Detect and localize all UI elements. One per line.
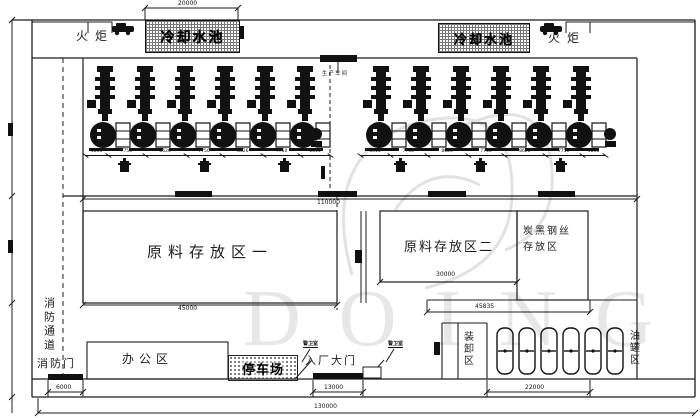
dim-pool-width: 20000	[178, 1, 197, 7]
flare-left-label: 火炬	[76, 30, 114, 43]
gate-label: 入厂大门	[305, 356, 357, 368]
total-width-dimension	[35, 398, 698, 416]
oil-tanks	[497, 328, 623, 374]
cooling-pool-left-label: 冷却水池	[161, 27, 225, 47]
storage-dimensions	[80, 279, 637, 315]
workshop-walls	[32, 58, 637, 379]
carbon-storage-label-line2: 存放区	[523, 243, 559, 254]
office-label: 办公区	[122, 353, 173, 366]
dim-fire-door-width: 6000	[56, 385, 71, 391]
dim-storage1-width: 45000	[178, 306, 197, 312]
factory-layout-drawing: DOING	[0, 0, 700, 418]
left-dimension-rail	[8, 17, 15, 413]
dimension-value: 6315	[360, 149, 390, 154]
dimension-value: 7750	[545, 149, 582, 154]
parking-lot-label: 停车场	[241, 359, 285, 378]
dimension-line	[360, 155, 605, 156]
dim-right-width: 45835	[475, 304, 494, 310]
boundary-walls	[12, 20, 695, 397]
cooling-pool-right-label: 冷却水池	[454, 29, 514, 48]
dimension-value: 6315	[300, 149, 330, 154]
storage2-label: 原料存放区二	[383, 240, 515, 254]
parking-lot: 停车场	[228, 355, 298, 381]
tank-area-label: 油罐区	[627, 330, 638, 378]
dimension-string-bank-right: 6315775086267750862677504836	[360, 149, 605, 157]
dim-total-width: 130000	[314, 404, 337, 410]
cooling-pool-left: 冷却水池	[145, 20, 240, 53]
dim-storage2-width: 30000	[436, 272, 455, 278]
dim-tank-width: 22000	[525, 385, 544, 391]
dimension-value: 8626	[145, 149, 186, 154]
dim-gate-width: 13000	[324, 385, 343, 391]
dimension-value: 7750	[108, 149, 145, 154]
guard-room-right-label: 警卫室	[388, 342, 403, 348]
fire-door-label: 消防门	[37, 359, 76, 371]
pump-icon	[310, 128, 322, 147]
carbon-storage-label-line1: 炭黑钢丝	[523, 227, 571, 238]
dimension-string-bank-left: 4836775086267750862677506315	[85, 149, 330, 157]
dimension-value: 7750	[263, 149, 300, 154]
flare-right-label: 火炬	[548, 32, 586, 45]
pump-icon	[604, 128, 616, 147]
storage1-label: 原料存放区一	[100, 246, 320, 262]
dimension-value: 7750	[468, 149, 505, 154]
dim-workshop-width: 110000	[317, 200, 340, 206]
cooling-pool-right: 冷却水池	[438, 23, 530, 53]
dimension-line	[85, 155, 330, 156]
fire-door-bar	[48, 374, 83, 380]
vehicle-icon	[112, 23, 134, 35]
dimension-value: 8626	[427, 149, 468, 154]
dimension-value: 7750	[186, 149, 223, 154]
dimension-value: 8626	[222, 149, 263, 154]
dimension-value: 7750	[390, 149, 427, 154]
loading-area-label: 装卸区	[461, 331, 472, 379]
guard-room-left-label: 警卫室	[303, 342, 318, 348]
dimension-value: 8626	[504, 149, 545, 154]
workshop-label: 生产车间	[322, 72, 348, 78]
